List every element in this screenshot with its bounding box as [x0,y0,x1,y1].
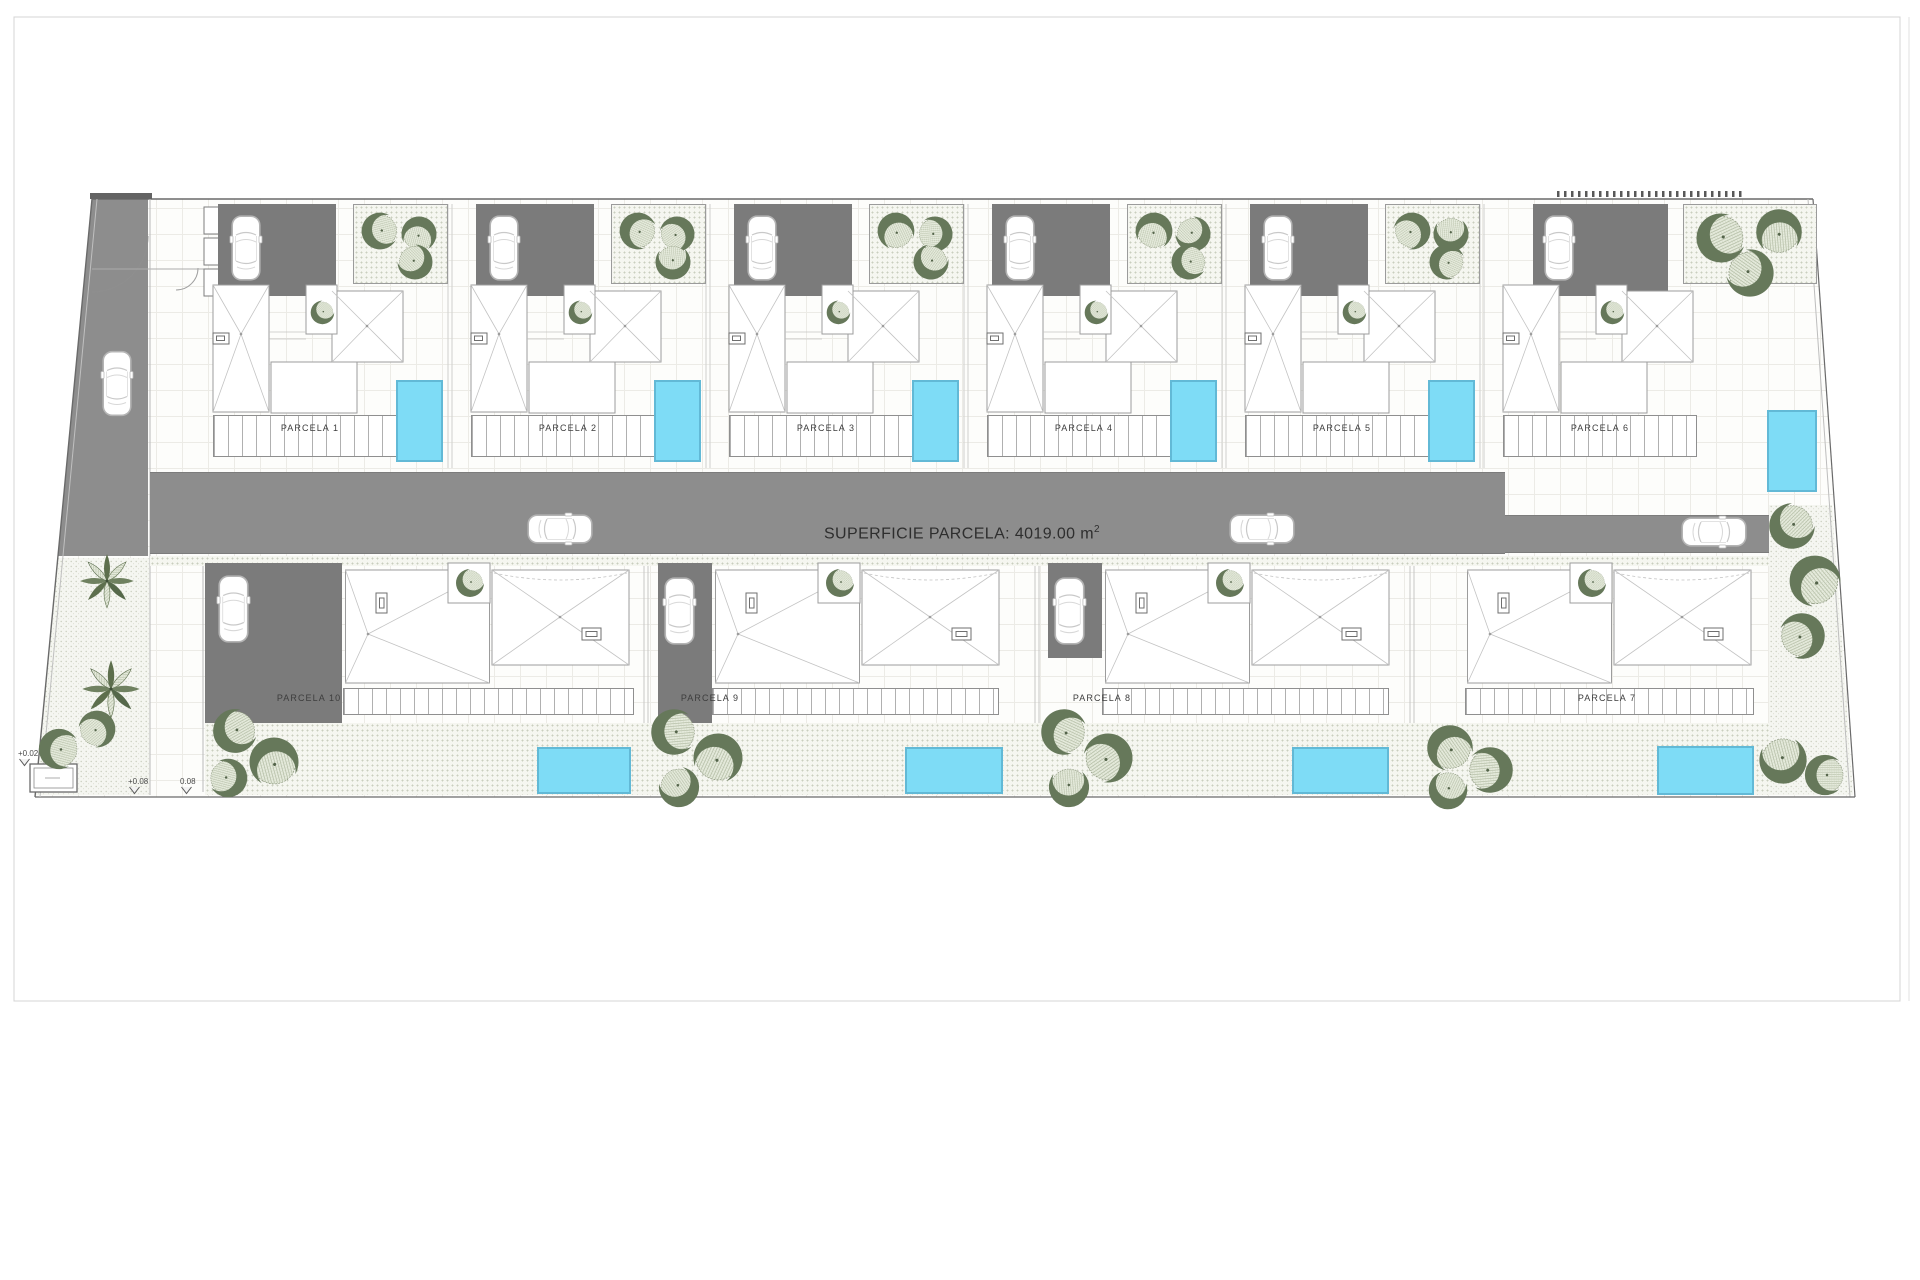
round-tree-icon [1802,752,1848,798]
door-swing-arc [176,268,198,290]
round-tree-icon [395,242,435,282]
parcel-top-4-pool [1170,380,1217,462]
parcel-bottom-8-label: PARCELA 8 [1050,693,1154,705]
parcel-top-5-house [1244,282,1440,414]
parcel-top-3-pool [912,380,959,462]
round-tree-icon [1046,764,1092,810]
road-area-label-text: SUPERFICIE PARCELA: 4019.00 m [824,525,1094,542]
round-tree-icon [1723,246,1777,300]
parcel-bottom-8-pool [1292,747,1389,794]
parcel-top-4-deck [987,415,1181,457]
parcel-top-6-deck [1503,415,1697,457]
level-marker-value: +0.02 [18,749,64,758]
parcel-top-2-pool [654,380,701,462]
level-marker-value: 0.08 [180,777,226,786]
parcel-bottom-9-label: PARCELA 9 [660,693,760,705]
round-tree-icon [653,242,693,282]
parcel-bottom-7-label: PARCELA 7 [1555,693,1659,705]
left-street-car [102,349,132,418]
parcel-top-2-car [489,214,519,282]
parcel-top-2-deck [471,415,665,457]
parcel-top-2-house [470,282,666,414]
round-tree-icon [911,242,951,282]
road-car-1 [525,514,595,544]
parcel-top-3-deck [729,415,923,457]
parcel-top-1-label: PARCELA 1 [213,423,407,435]
sheet-canvas: SUPERFICIE PARCELA: 4019.00 m2 PARCELA 1… [0,0,1920,1280]
parcel-bottom-10-house [345,556,632,688]
level-marker: +0.02 [18,749,64,771]
parcel-top-2-label: PARCELA 2 [471,423,665,435]
road-car-3 [1679,517,1749,547]
parcel-top-4-label: PARCELA 4 [987,423,1181,435]
round-tree-icon [1169,242,1209,282]
parcel-bottom-10-label: PARCELA 10 [249,693,369,705]
parcel-bottom-10-car [218,574,249,644]
parcel-top-5-label: PARCELA 5 [1245,423,1439,435]
entrance-wall [90,193,152,199]
parcel-bottom-8-house [1105,556,1392,688]
parcel-top-6-label: PARCELA 6 [1503,423,1697,435]
parcel-bottom-8-car [1054,576,1085,646]
site-plan: SUPERFICIE PARCELA: 4019.00 m2 PARCELA 1… [0,0,1920,1280]
round-tree-icon [1464,744,1516,796]
round-tree-icon [1426,768,1470,812]
road-car-2 [1227,514,1297,544]
parcel-top-5-deck [1245,415,1439,457]
parcel-bottom-10-pool [537,747,631,794]
parcel-top-6-house [1502,282,1698,414]
parcel-bottom-10-deck [343,688,634,715]
road-area-label-sup: 2 [1094,524,1100,535]
parcel-top-1-house [212,282,408,414]
parcel-top-4-house [986,282,1182,414]
parcel-top-3-label: PARCELA 3 [729,423,923,435]
level-marker: +0.08 [128,777,174,799]
parcel-top-4-car [1005,214,1035,282]
parcel-top-5-pool [1428,380,1475,462]
round-tree-icon [1776,610,1828,662]
parcel-bottom-7-house [1467,556,1754,688]
level-marker-value: +0.08 [128,777,174,786]
parcel-top-6-car [1544,214,1574,282]
parcel-top-3-car [747,214,777,282]
palm-tree-icon [80,658,142,720]
parcel-bottom-9-pool [905,747,1003,794]
parcel-top-1-car [231,214,261,282]
road-area-label: SUPERFICIE PARCELA: 4019.00 m2 [790,524,1134,543]
parcel-top-1-deck [213,415,407,457]
parcel-top-1-pool [396,380,443,462]
parcel-bottom-7-pool [1657,746,1754,795]
parcel-top-5-car [1263,214,1293,282]
round-tree-icon [246,734,302,790]
palm-tree-icon [78,552,136,610]
round-tree-icon [1766,500,1818,552]
parcel-top-3-house [728,282,924,414]
round-tree-icon [1786,552,1844,610]
level-marker: 0.08 [180,777,226,799]
round-tree-icon [656,764,702,810]
parcel-top-6-pool [1767,410,1817,492]
parcel-bottom-9-house [715,556,1002,688]
parcel-bottom-9-car [664,576,695,646]
round-tree-icon [1427,242,1467,282]
